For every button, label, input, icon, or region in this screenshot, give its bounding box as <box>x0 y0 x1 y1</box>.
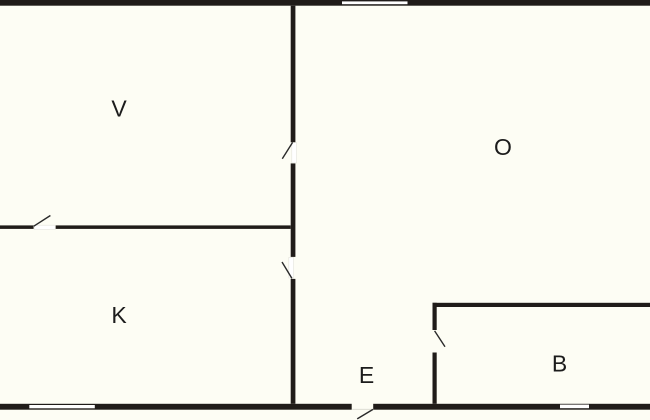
svg-text:E: E <box>359 362 374 388</box>
svg-text:O: O <box>494 134 512 160</box>
svg-text:V: V <box>111 96 127 122</box>
svg-text:K: K <box>111 302 127 328</box>
svg-text:B: B <box>552 351 567 377</box>
